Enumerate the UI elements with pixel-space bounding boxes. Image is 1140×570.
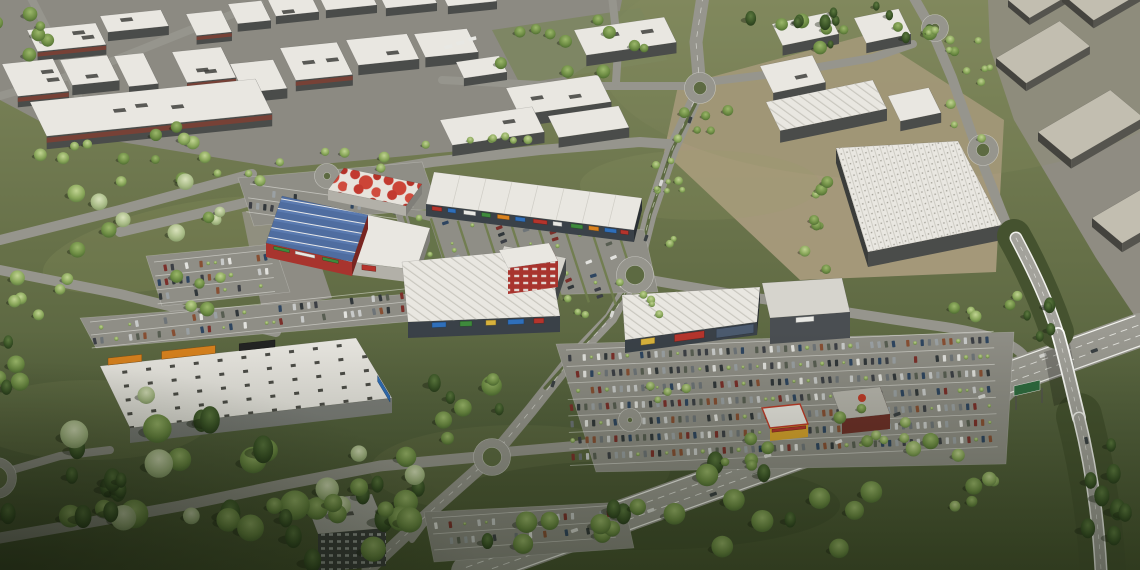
tree-crown [510,137,517,144]
tree-crown [649,301,655,307]
tree-crown [951,121,958,128]
parked-car [186,276,190,283]
tree-crown [674,176,683,185]
storefront-sign [460,321,472,326]
tree-crown [185,300,197,312]
tree-crown [666,179,671,184]
roundabout [685,73,716,104]
parked-car [256,203,260,210]
tree-crown [116,176,127,187]
parked-car [249,202,253,209]
tree-crown [495,57,507,69]
tree-crown [170,270,183,283]
tree-crown [603,26,616,39]
storefront-sign [448,208,456,213]
tree-crown [194,278,204,288]
tree-crown [501,132,509,140]
parking-shrub [451,242,454,245]
tree-crown [150,129,162,141]
tree-crown [946,36,955,45]
tree-crown [33,309,44,320]
tree-crown [559,35,572,48]
tree-crown [946,99,956,109]
tree-crown [745,11,756,26]
tree-crown [10,270,25,285]
tree-crown [83,139,92,148]
parked-car [243,322,247,329]
parking-shrub [229,273,234,278]
tree-crown [561,65,574,78]
tree-crown [379,152,390,163]
parking-shrub [272,321,275,324]
tree-crown [422,141,430,149]
tree-crown [1023,310,1031,320]
retail-park-aerial-scene [0,0,1140,570]
parked-car [221,258,225,265]
tree-crown [981,65,988,72]
parked-car [272,191,276,198]
tree-crown [215,272,226,283]
parked-car [307,302,311,309]
parking-shrub [265,321,269,325]
tree-crown [722,105,733,116]
parking-shrub [470,223,474,227]
parking-shrub [529,242,532,245]
tree-crown [340,148,350,158]
tree-crown [668,158,674,164]
tree-crown [91,193,108,210]
building-roof [762,278,850,318]
tree-crown [171,121,182,132]
tree-crown [34,148,47,161]
tree-crown [946,47,952,53]
parking-shrub [214,261,217,264]
tree-crown [652,161,660,169]
tree-crown [276,158,284,166]
tree-crown [931,26,939,34]
tree-crown [616,279,624,287]
tree-crown [596,65,610,79]
parked-car [278,305,282,312]
corner-vignette [0,360,480,570]
tree-crown [813,41,827,55]
tree [416,215,423,222]
parked-car [371,295,375,302]
tree-crown [582,311,589,318]
tree-crown [199,151,211,163]
tree-crown [61,273,73,285]
tree-crown [523,135,532,144]
tree-crown [679,187,685,193]
tree-crown [574,309,581,316]
tree-crown [886,10,893,20]
tree-crown [821,176,833,188]
tree-crown [467,137,474,144]
tree-crown [902,32,910,44]
tree-crown [70,242,86,258]
parking-shrub [594,281,598,285]
tree-crown [178,133,191,146]
parked-car [263,204,267,211]
tree-crown [707,127,715,135]
tree-crown [674,134,683,143]
roundabout [617,257,654,294]
storefront-sign [621,230,629,235]
tree-crown [22,48,36,62]
parked-car [216,287,220,294]
tree-crown [70,142,79,151]
tree-crown [489,134,497,142]
tree-crown [215,207,226,218]
storefront-sign [534,318,544,323]
tree-crown [23,7,38,22]
tree-crown [55,284,66,295]
parking-shrub [259,284,263,288]
tree-crown [8,295,21,308]
aerial-render-stage [0,0,1140,570]
tree-crown [799,246,810,257]
tree-crown [214,169,222,177]
parking-shrub [555,244,559,248]
tree-crown [177,174,193,190]
tree-crown [67,185,85,203]
tree-crown [1044,301,1052,312]
tree-crown [809,215,819,225]
parked-car [237,285,241,292]
tree-crown [118,153,130,165]
tree-crown [693,126,701,134]
tree-crown [1005,300,1016,311]
tree-crown [115,212,130,227]
tree-crown [775,18,788,31]
tree [427,252,432,257]
tree-crown [701,111,710,120]
tree-crown [564,295,572,303]
tree-crown [640,44,649,53]
building-roof [414,29,478,58]
storefront-sign [486,320,496,325]
parking-shrub [242,310,246,314]
tree-crown [893,22,903,32]
tree-crown [828,40,834,48]
tree-crown [830,7,838,18]
tree-crown [167,224,185,242]
tree-crown [679,107,690,118]
parked-car [208,274,212,281]
tree-crown [820,15,831,31]
parked-car [401,305,405,312]
tree-crown [531,24,541,34]
tree-crown [839,25,848,34]
tree-crown [101,222,116,237]
parking-shrub [128,323,131,326]
parked-car [265,268,269,275]
tree-crown [821,264,831,274]
tree-crown [57,152,69,164]
tree-crown [203,212,214,223]
tree-crown [654,186,660,192]
parking-shrub [223,288,226,291]
tree-crown [151,155,160,164]
tree-crown [1012,291,1022,301]
tree-crown [655,310,663,318]
parked-car [386,307,390,314]
tree-crown [200,302,214,316]
storefront-sign [508,319,524,325]
tree-crown [254,175,265,186]
storefront-sign [432,322,446,328]
parked-car [292,304,296,311]
tree-crown [794,17,802,28]
tree-crown [639,291,647,299]
tree-crown [376,163,385,172]
tree-crown [948,302,960,314]
tree-crown [970,311,982,323]
tree-crown [666,240,674,248]
parked-car [199,261,203,268]
parking-shrub [452,248,457,253]
parking-shrub [206,262,210,266]
tree-crown [925,30,931,36]
tree-crown [977,78,985,86]
parking-shrub [99,325,104,330]
tree-crown [514,26,525,37]
tree-crown [36,21,46,31]
tree-crown [321,148,329,156]
tree-crown [592,15,603,26]
tree-crown [975,37,982,44]
tree-crown [873,1,880,10]
parking-shrub [222,326,225,329]
tree-crown [664,188,670,194]
tree-crown [245,170,252,177]
storefront-sign [553,221,562,226]
tree-crown [545,29,556,40]
tree-crown [977,134,986,143]
parked-car [344,311,348,318]
tree-crown [963,67,970,74]
